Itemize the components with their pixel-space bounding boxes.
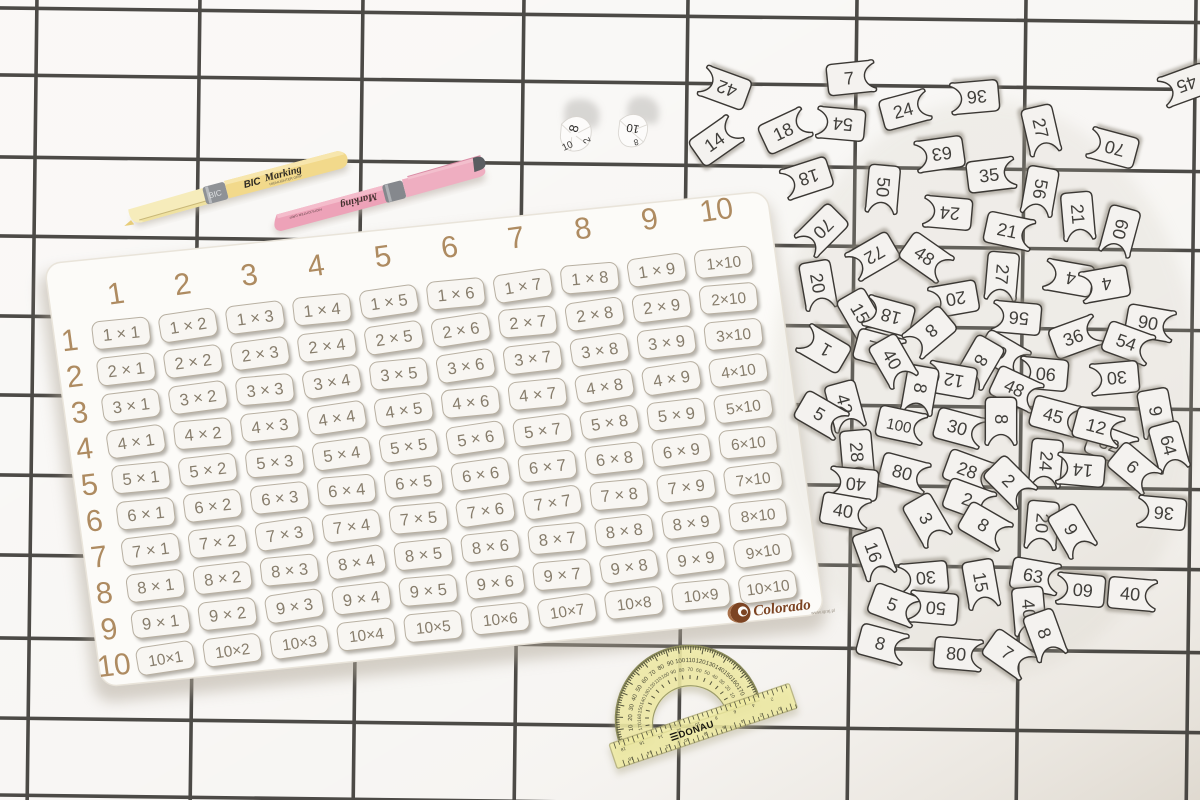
svg-text:5 × 9: 5 × 9 [657,403,696,426]
svg-text:8: 8 [991,414,1011,424]
svg-text:4 × 7: 4 × 7 [518,383,557,406]
svg-text:3×10: 3×10 [715,326,752,346]
svg-text:54: 54 [832,113,854,135]
svg-text:1 × 6: 1 × 6 [436,283,475,305]
svg-text:5 × 1: 5 × 1 [121,467,160,489]
svg-text:24: 24 [939,202,961,224]
svg-text:1 × 4: 1 × 4 [303,299,342,321]
svg-text:28: 28 [846,441,868,463]
svg-text:3 × 5: 3 × 5 [379,363,418,386]
svg-text:9 × 7: 9 × 7 [543,564,582,586]
svg-text:40: 40 [845,473,867,495]
svg-text:12: 12 [942,369,965,392]
svg-text:2 × 7: 2 × 7 [508,311,547,333]
svg-text:8 × 5: 8 × 5 [404,543,443,566]
svg-text:8 × 3: 8 × 3 [270,559,309,581]
svg-text:6 × 3: 6 × 3 [260,487,299,510]
svg-text:20: 20 [806,272,829,295]
svg-text:63: 63 [931,142,954,165]
svg-text:6 × 7: 6 × 7 [528,455,567,478]
svg-text:40: 40 [1119,583,1141,605]
svg-text:4 × 6: 4 × 6 [451,391,490,413]
svg-text:1×10: 1×10 [705,253,742,273]
svg-text:35: 35 [978,164,1000,186]
svg-text:7 × 5: 7 × 5 [399,507,438,529]
svg-text:10×6: 10×6 [482,610,519,630]
svg-text:36: 36 [1153,502,1175,524]
svg-text:10×5: 10×5 [415,618,452,638]
svg-text:56: 56 [1029,177,1052,200]
svg-text:14: 14 [1072,459,1094,481]
svg-text:20: 20 [944,287,967,310]
svg-text:21: 21 [995,219,1019,243]
svg-text:36: 36 [966,86,988,108]
svg-text:20: 20 [628,713,634,720]
svg-text:10: 10 [626,121,641,135]
svg-text:10×9: 10×9 [683,586,720,606]
svg-text:5 × 3: 5 × 3 [255,451,294,473]
svg-text:24: 24 [1035,450,1057,472]
svg-text:70: 70 [687,667,693,673]
svg-text:1 × 8: 1 × 8 [570,267,609,289]
svg-text:50: 50 [925,597,947,619]
svg-text:6×10: 6×10 [730,434,767,454]
svg-text:8×10: 8×10 [740,506,777,527]
svg-text:6 × 4: 6 × 4 [327,479,366,501]
svg-text:1 × 1: 1 × 1 [102,322,141,345]
svg-text:40: 40 [831,499,854,522]
svg-text:63: 63 [1021,564,1044,587]
svg-text:80: 80 [945,643,967,665]
svg-text:56: 56 [1008,307,1030,329]
svg-text:8 × 7: 8 × 7 [538,528,577,550]
svg-text:80: 80 [679,667,686,674]
svg-text:7: 7 [843,68,855,89]
svg-text:50: 50 [872,176,894,198]
svg-text:21: 21 [1067,203,1089,225]
svg-text:7 × 8: 7 × 8 [600,484,639,506]
svg-text:4 × 3: 4 × 3 [250,415,289,438]
svg-text:60: 60 [1072,579,1094,601]
svg-text:8 × 6: 8 × 6 [471,535,510,558]
svg-text:15: 15 [969,571,992,594]
svg-text:3 × 3: 3 × 3 [245,379,284,401]
svg-text:30: 30 [1106,367,1128,389]
svg-text:4 × 2: 4 × 2 [183,423,222,445]
svg-text:30: 30 [915,567,937,589]
svg-text:9 × 5: 9 × 5 [409,580,448,602]
svg-text:6 × 1: 6 × 1 [126,503,165,526]
svg-text:27: 27 [991,263,1013,285]
svg-text:10: 10 [95,647,133,684]
svg-text:6 × 5: 6 × 5 [394,471,433,494]
svg-text:2×10: 2×10 [710,290,747,310]
svg-text:10: 10 [697,192,735,229]
